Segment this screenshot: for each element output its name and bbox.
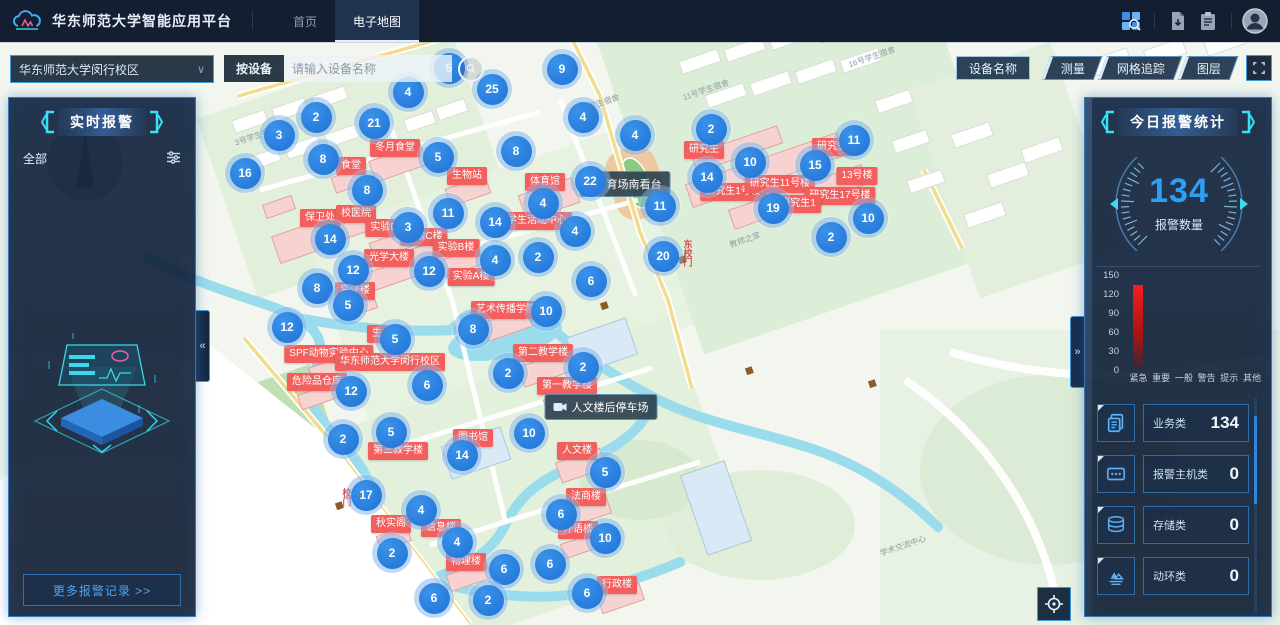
alarm-category-item[interactable]: 存储类0 <box>1143 506 1249 544</box>
device-cluster-marker[interactable]: 2 <box>468 580 508 620</box>
cluster-count: 4 <box>442 527 473 558</box>
cluster-count: 6 <box>572 578 603 609</box>
cluster-count: 6 <box>576 266 607 297</box>
cluster-count: 5 <box>590 457 621 488</box>
fullscreen-button[interactable] <box>1246 55 1272 81</box>
device-cluster-marker[interactable]: 14 <box>442 435 482 475</box>
alarm-host-icon <box>1097 455 1135 493</box>
cluster-count: 19 <box>758 193 789 224</box>
device-cluster-marker[interactable]: 11 <box>640 186 680 226</box>
chevron-down-icon: ∨ <box>197 63 205 76</box>
header-bracket-right-icon <box>149 109 163 135</box>
grid-track-button-label: 网格追踪 <box>1117 60 1165 77</box>
device-tooltip-label: 人文楼后停车场 <box>572 399 649 415</box>
alarm-category-value: 134 <box>1211 413 1239 433</box>
device-cluster-marker[interactable]: 6 <box>567 573 607 613</box>
measure-button-label: 测量 <box>1061 60 1085 77</box>
device-search-input[interactable] <box>284 55 452 82</box>
cluster-count: 2 <box>328 424 359 455</box>
header-bracket-left-icon <box>41 109 55 135</box>
chart-category-label: 其他 <box>1240 371 1265 384</box>
search-type-label: 按设备 <box>224 55 284 82</box>
device-cluster-marker[interactable]: 4 <box>563 97 603 137</box>
cluster-count: 9 <box>547 54 578 85</box>
today-alarm-stats-header: 今日报警统计 <box>1085 108 1271 136</box>
device-cluster-marker[interactable]: 5 <box>418 137 458 177</box>
cluster-count: 20 <box>648 241 679 272</box>
device-cluster-marker[interactable]: 2 <box>372 533 412 573</box>
device-cluster-marker[interactable]: 4 <box>555 211 595 251</box>
cluster-count: 5 <box>380 324 411 355</box>
cluster-count: 2 <box>523 242 554 273</box>
cluster-count: 2 <box>493 358 524 389</box>
device-cluster-marker[interactable]: 2 <box>488 353 528 393</box>
chart-ytick-label: 150 <box>1093 270 1119 281</box>
cluster-count: 2 <box>301 102 332 133</box>
device-cluster-marker[interactable]: 2 <box>296 97 336 137</box>
device-cluster-marker[interactable]: 6 <box>414 578 454 618</box>
cluster-count: 4 <box>568 102 599 133</box>
cluster-count: 2 <box>816 222 847 253</box>
cluster-count: 22 <box>575 166 606 197</box>
search-button[interactable] <box>458 56 484 82</box>
chart-category-label: 紧急 <box>1126 371 1151 384</box>
user-avatar-icon[interactable] <box>1240 6 1270 36</box>
header-bracket-right-icon <box>1241 109 1255 135</box>
device-cluster-marker[interactable]: 2 <box>518 237 558 277</box>
device-cluster-marker[interactable]: 21 <box>354 103 394 143</box>
cluster-count: 2 <box>473 585 504 616</box>
device-cluster-marker[interactable]: 15 <box>795 145 835 185</box>
panel-divider <box>1097 266 1259 267</box>
cluster-count: 10 <box>514 418 545 449</box>
cluster-count: 11 <box>839 125 870 156</box>
cluster-count: 14 <box>447 440 478 471</box>
grid-track-button[interactable]: 网格追踪 <box>1098 56 1183 80</box>
device-cluster-marker[interactable]: 6 <box>571 261 611 301</box>
cluster-count: 5 <box>376 417 407 448</box>
device-cluster-marker[interactable]: 22 <box>570 161 610 201</box>
alarm-category-label: 报警主机类 <box>1153 466 1208 482</box>
cluster-count: 5 <box>333 290 364 321</box>
cluster-count: 4 <box>406 495 437 526</box>
measure-button[interactable]: 测量 <box>1042 56 1103 80</box>
device-search-group: 按设备 <box>224 55 484 82</box>
device-name-toggle-button[interactable]: 设备名称 <box>956 56 1030 80</box>
cluster-count: 2 <box>568 352 599 383</box>
alarm-category-item[interactable]: 动环类0 <box>1143 557 1249 595</box>
cluster-count: 2 <box>377 538 408 569</box>
device-cluster-marker[interactable]: 12 <box>333 250 373 290</box>
alarm-count-gauge: 134 报警数量 <box>1094 146 1264 281</box>
top-navbar: 华东师范大学智能应用平台 首页 电子地图 <box>0 0 1280 42</box>
more-alarm-records-button[interactable]: 更多报警记录 >> <box>23 574 181 606</box>
file-export-icon[interactable] <box>1163 6 1193 36</box>
cluster-count: 11 <box>433 198 464 229</box>
alarm-category-label: 存储类 <box>1153 517 1186 533</box>
device-cluster-marker[interactable]: 10 <box>585 518 625 558</box>
device-cluster-marker[interactable]: 12 <box>267 307 307 347</box>
cluster-count: 8 <box>352 175 383 206</box>
cluster-count: 8 <box>308 144 339 175</box>
storage-icon <box>1097 506 1135 544</box>
device-cluster-marker[interactable]: 2 <box>811 217 851 257</box>
panel-scrollbar-thumb[interactable] <box>1254 416 1257 504</box>
device-cluster-marker[interactable]: 16 <box>225 153 265 193</box>
locate-button[interactable] <box>1037 587 1071 621</box>
device-cluster-marker[interactable]: 20 <box>643 236 683 276</box>
chart-category-label: 提示 <box>1217 371 1242 384</box>
device-cluster-marker[interactable]: 14 <box>687 157 727 197</box>
alarm-category-row: 报警主机类0 <box>1097 455 1249 493</box>
device-cluster-marker[interactable]: 10 <box>848 198 888 238</box>
cluster-count: 6 <box>412 370 443 401</box>
cluster-count: 4 <box>620 120 651 151</box>
device-cluster-marker[interactable]: 17 <box>346 475 386 515</box>
main-menu: 首页 电子地图 <box>275 0 419 42</box>
today-alarm-stats-title: 今日报警统计 <box>1118 108 1238 136</box>
cluster-count: 4 <box>528 188 559 219</box>
device-cluster-marker[interactable]: 8 <box>453 309 493 349</box>
clipboard-icon[interactable] <box>1193 6 1223 36</box>
device-cluster-marker[interactable]: 4 <box>437 522 477 562</box>
device-cluster-marker[interactable]: 11 <box>834 120 874 160</box>
cluster-count: 16 <box>230 158 261 189</box>
cluster-count: 14 <box>692 162 723 193</box>
chart-bar <box>1133 285 1143 370</box>
device-cluster-marker[interactable]: 10 <box>509 413 549 453</box>
device-cluster-marker[interactable]: 12 <box>331 371 371 411</box>
nav-item-electronic-map[interactable]: 电子地图 <box>335 0 419 42</box>
alarm-category-item[interactable]: 业务类134 <box>1143 404 1249 442</box>
smart-campus-app: 北 10号学生宿舍9号学生宿舍11号学生宿舍15号学生宿舍16号学生宿舍3号学生… <box>0 0 1280 625</box>
cluster-count: 14 <box>315 224 346 255</box>
cluster-count: 15 <box>800 150 831 181</box>
device-cluster-marker[interactable]: 10 <box>526 291 566 331</box>
alarm-category-value: 0 <box>1230 464 1239 484</box>
alarm-category-list: 业务类134报警主机类0存储类0动环类0 <box>1097 404 1249 608</box>
device-cluster-marker[interactable]: 12 <box>409 251 449 291</box>
cluster-count: 6 <box>546 499 577 530</box>
cluster-count: 3 <box>393 212 424 243</box>
map-tool-group: 测量 网格追踪 图层 <box>1042 56 1234 80</box>
realtime-alarm-header: 实时报警 <box>9 108 195 136</box>
apps-search-icon[interactable] <box>1116 6 1146 36</box>
device-cluster-marker[interactable]: 8 <box>303 139 343 179</box>
cluster-count: 14 <box>480 207 511 238</box>
device-cluster-marker[interactable]: 5 <box>585 452 625 492</box>
right-panel-collapse-button[interactable]: » <box>1070 316 1084 388</box>
empty-state-hologram-icon <box>27 323 177 463</box>
device-cluster-marker[interactable]: 8 <box>347 170 387 210</box>
alarm-count-value: 134 <box>1094 172 1264 211</box>
cluster-count: 11 <box>645 191 676 222</box>
alarm-category-value: 0 <box>1230 566 1239 586</box>
cluster-count: 5 <box>423 142 454 173</box>
device-cluster-marker[interactable]: 10 <box>730 142 770 182</box>
device-cluster-marker[interactable]: 11 <box>428 193 468 233</box>
locate-target-icon <box>1044 594 1064 614</box>
device-cluster-marker[interactable]: 2 <box>323 419 363 459</box>
nav-icon-divider <box>1154 13 1155 29</box>
alarm-category-row: 动环类0 <box>1097 557 1249 595</box>
cluster-count: 2 <box>696 114 727 145</box>
device-cluster-marker[interactable]: 14 <box>475 202 515 242</box>
platform-title: 华东师范大学智能应用平台 <box>52 11 232 31</box>
campus-select-value: 华东师范大学闵行校区 <box>19 61 139 78</box>
alarm-filter-row: 全部 <box>23 150 181 167</box>
alarm-category-row: 存储类0 <box>1097 506 1249 544</box>
alarm-count-label: 报警数量 <box>1094 216 1264 233</box>
device-cluster-marker[interactable]: 6 <box>530 544 570 584</box>
device-cluster-marker[interactable]: 4 <box>475 240 515 280</box>
nav-item-home[interactable]: 首页 <box>275 0 335 42</box>
today-alarm-stats-panel: 今日报警统计 134 报警数量 0306090120150紧急重要一般警告提示其… <box>1084 97 1272 617</box>
header-bracket-left-icon <box>1101 109 1115 135</box>
device-cluster-marker[interactable]: 4 <box>401 490 441 530</box>
chart-ytick-label: 0 <box>1093 365 1119 376</box>
chart-category-label: 重要 <box>1149 371 1174 384</box>
alarm-level-bar-chart: 0306090120150紧急重要一般警告提示其他 <box>1093 270 1265 386</box>
device-cluster-marker[interactable]: 6 <box>541 494 581 534</box>
environment-icon <box>1097 557 1135 595</box>
device-cluster-marker[interactable]: 4 <box>615 115 655 155</box>
device-cluster-marker[interactable]: 3 <box>388 207 428 247</box>
cluster-count: 12 <box>414 256 445 287</box>
filter-all-label[interactable]: 全部 <box>23 150 47 167</box>
cluster-count: 12 <box>272 312 303 343</box>
device-cluster-marker[interactable]: 5 <box>375 319 415 359</box>
device-cluster-marker[interactable]: 19 <box>753 188 793 228</box>
chart-ytick-label: 90 <box>1093 308 1119 319</box>
nav-divider <box>252 12 253 30</box>
cluster-count: 10 <box>735 147 766 178</box>
cluster-count: 21 <box>359 108 390 139</box>
device-cluster-marker[interactable]: 5 <box>371 412 411 452</box>
nav-icon-divider <box>1231 13 1232 29</box>
chart-ytick-label: 120 <box>1093 289 1119 300</box>
device-cluster-marker[interactable]: 2 <box>691 109 731 149</box>
layers-button[interactable]: 图层 <box>1178 56 1239 80</box>
cluster-count: 17 <box>351 480 382 511</box>
search-icon <box>466 62 476 75</box>
campus-select[interactable]: 华东师范大学闵行校区 ∨ <box>10 55 214 83</box>
cluster-count: 12 <box>338 255 369 286</box>
cluster-count: 10 <box>590 523 621 554</box>
left-panel-collapse-button[interactable]: « <box>196 310 210 382</box>
device-cluster-marker[interactable]: 5 <box>328 285 368 325</box>
chart-ytick-label: 30 <box>1093 346 1119 357</box>
camera-icon <box>554 402 567 412</box>
realtime-alarm-title: 实时报警 <box>58 108 146 136</box>
device-cluster-marker[interactable]: 8 <box>496 131 536 171</box>
realtime-alarm-panel: 实时报警 全部 <box>8 97 196 617</box>
chart-category-label: 警告 <box>1194 371 1219 384</box>
cluster-count: 8 <box>501 136 532 167</box>
map-tools: 设备名称 测量 网格追踪 图层 <box>956 55 1272 81</box>
device-cluster-marker[interactable]: 2 <box>563 347 603 387</box>
documents-icon <box>1097 404 1135 442</box>
cluster-count: 6 <box>535 549 566 580</box>
device-cluster-marker[interactable]: 4 <box>523 183 563 223</box>
cluster-count: 12 <box>336 376 367 407</box>
device-cluster-marker[interactable]: 3 <box>259 115 299 155</box>
alarm-category-row: 业务类134 <box>1097 404 1249 442</box>
cluster-count: 10 <box>531 296 562 327</box>
cluster-count: 4 <box>560 216 591 247</box>
chart-ytick-label: 60 <box>1093 327 1119 338</box>
alarm-category-item[interactable]: 报警主机类0 <box>1143 455 1249 493</box>
cluster-count: 8 <box>458 314 489 345</box>
cluster-count: 10 <box>853 203 884 234</box>
alarm-category-value: 0 <box>1230 515 1239 535</box>
chart-category-label: 一般 <box>1171 371 1196 384</box>
fullscreen-icon <box>1253 61 1265 75</box>
cluster-count: 6 <box>419 583 450 614</box>
layers-button-label: 图层 <box>1197 60 1221 77</box>
device-cluster-marker[interactable]: 9 <box>542 49 582 89</box>
alarm-category-label: 业务类 <box>1153 415 1186 431</box>
filter-sliders-icon[interactable] <box>166 151 181 167</box>
cluster-count: 3 <box>264 120 295 151</box>
device-tooltip[interactable]: 人文楼后停车场 <box>545 394 658 420</box>
cluster-count: 4 <box>480 245 511 276</box>
device-cluster-marker[interactable]: 6 <box>407 365 447 405</box>
alarm-category-label: 动环类 <box>1153 568 1186 584</box>
platform-logo-icon <box>12 10 42 32</box>
